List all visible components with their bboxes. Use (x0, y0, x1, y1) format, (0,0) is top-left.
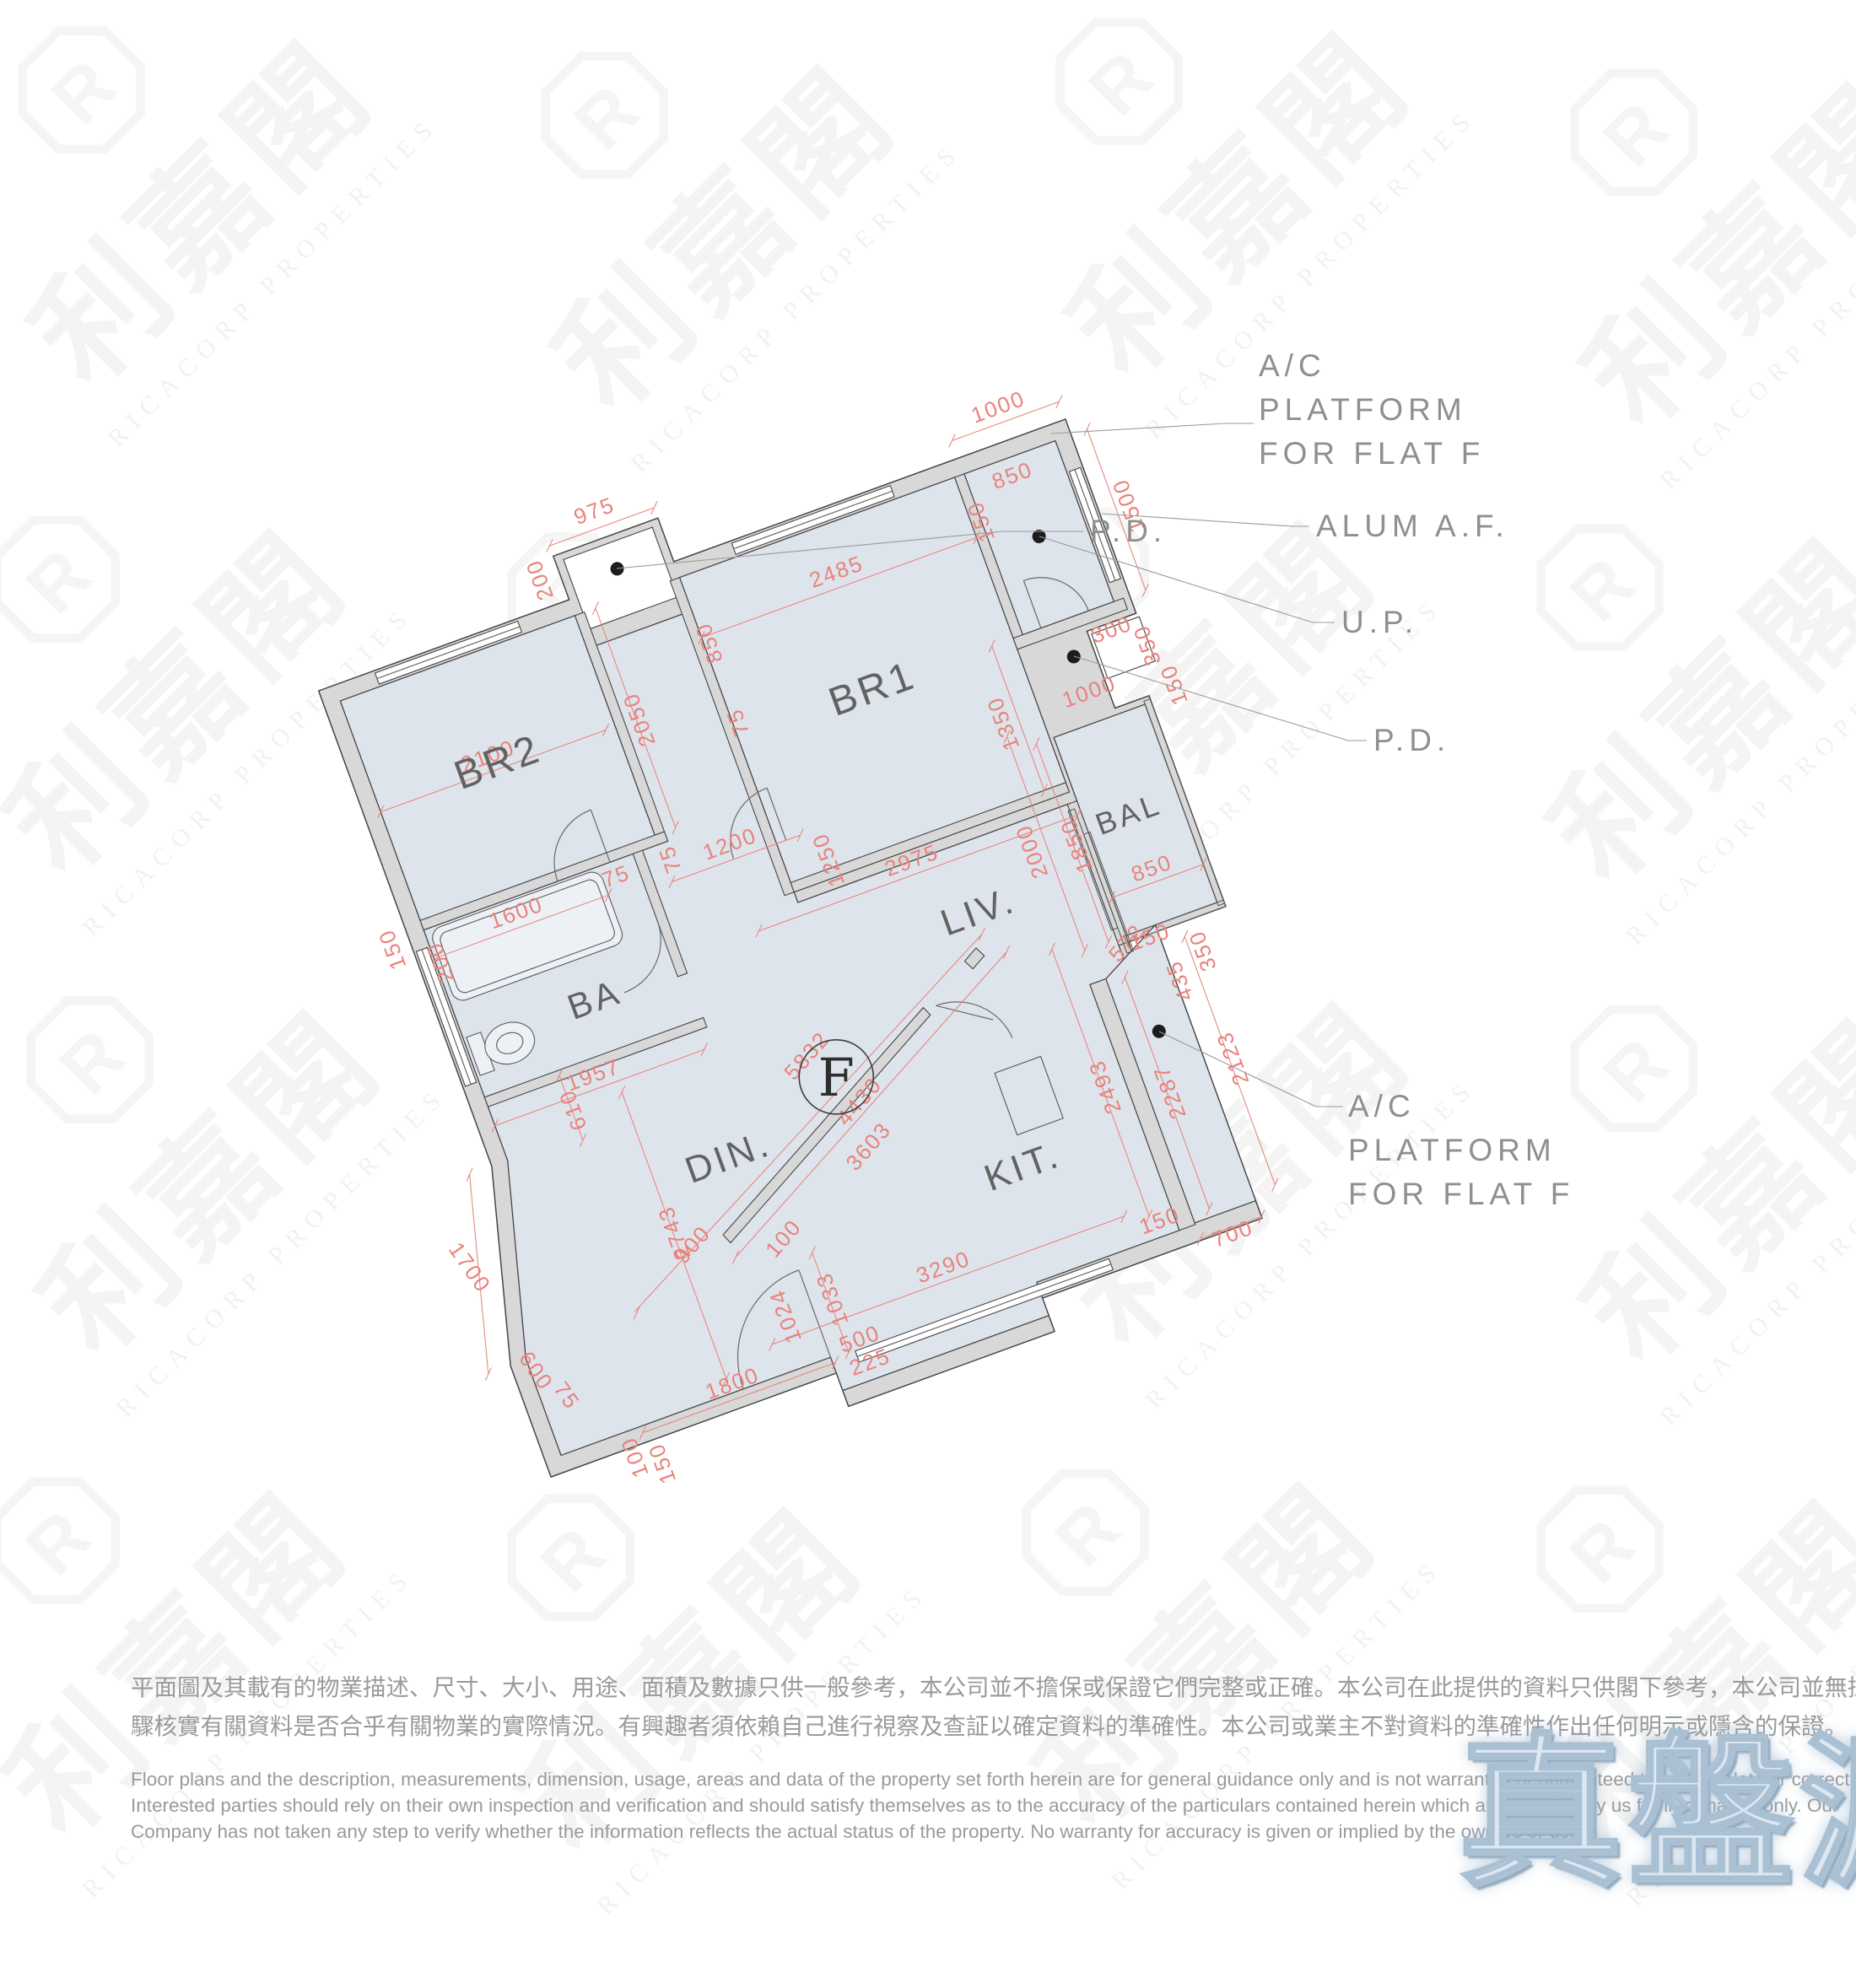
callout-pd-right: P.D. (1373, 723, 1450, 757)
dimension-label: 150 (373, 925, 411, 973)
leader-ac-top (1051, 423, 1254, 434)
dimension-label: 150 (643, 1440, 681, 1488)
callout-ac-top-line1: A/C (1259, 348, 1326, 383)
floorplan-drawing: 9752002100205075850751200125024851501350… (0, 0, 1856, 1856)
callout-ac-top-line2: PLATFORM (1259, 392, 1467, 427)
dimension-label: 350 (1184, 927, 1222, 975)
svg-text:F: F (818, 1047, 855, 1108)
callout-alum-af: ALUM A.F. (1316, 509, 1509, 543)
floorplan-page: { "watermark": { "cjk": "利嘉閣", "en": "RI… (0, 0, 1856, 1856)
dimension-label: 150 (1155, 661, 1193, 709)
callout-up: U.P. (1341, 605, 1418, 639)
dimension-label: 975 (570, 492, 618, 530)
dimension-label: 1000 (968, 385, 1028, 428)
callout-ac-top-line3: FOR FLAT F (1259, 436, 1485, 471)
callout-ac-right-line2: PLATFORM (1348, 1133, 1557, 1167)
callout-ac-right-line3: FOR FLAT F (1348, 1177, 1574, 1211)
callout-pd-top: P.D. (1090, 514, 1167, 548)
dimension-label: 200 (521, 556, 558, 604)
dimension-label: 2123 (1211, 1028, 1254, 1089)
callout-ac-right-line1: A/C (1348, 1089, 1416, 1123)
property-seal-logo: 真盤源 (1458, 1680, 1856, 1919)
dimension-label: 1700 (444, 1237, 496, 1297)
